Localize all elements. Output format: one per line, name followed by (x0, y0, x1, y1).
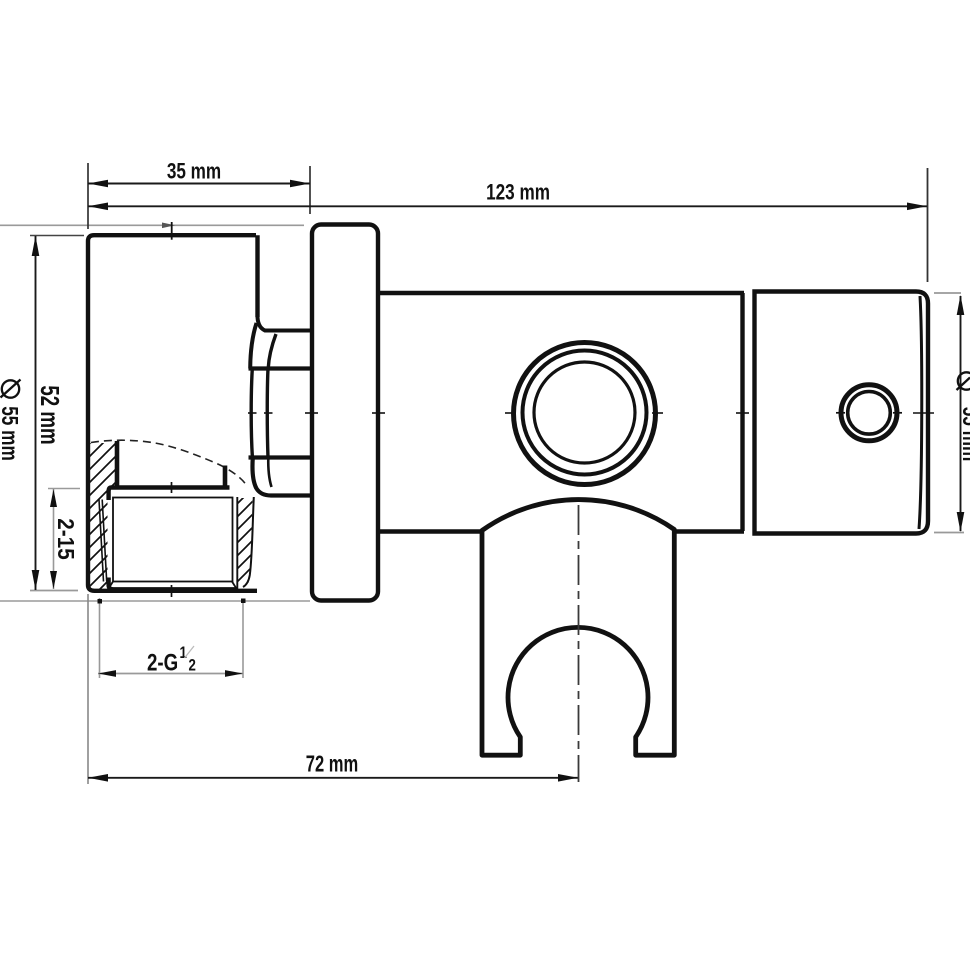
svg-text:1: 1 (180, 644, 188, 663)
svg-text:55 mm: 55 mm (0, 406, 21, 461)
svg-text:2-15: 2-15 (53, 518, 79, 559)
svg-text:35 mm: 35 mm (167, 160, 221, 185)
svg-text:72 mm: 72 mm (306, 752, 358, 777)
svg-text:2-G: 2-G (147, 650, 178, 677)
svg-text:2: 2 (189, 656, 196, 675)
svg-text:55 mm: 55 mm (957, 407, 970, 462)
svg-text:123 mm: 123 mm (486, 181, 550, 206)
svg-text:52 mm: 52 mm (35, 385, 65, 444)
